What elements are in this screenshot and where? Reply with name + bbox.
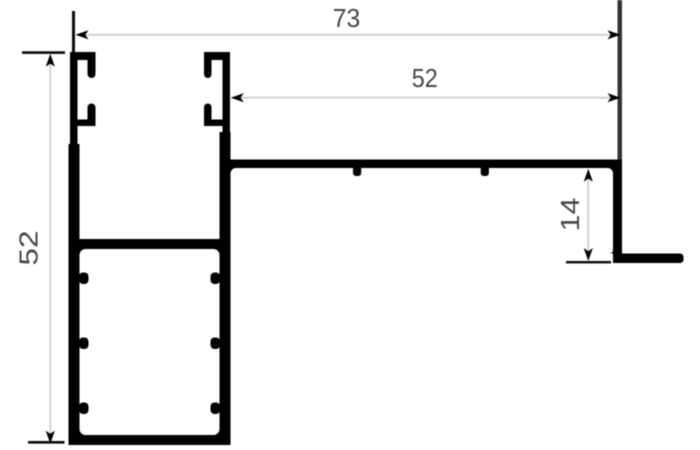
svg-text:52: 52 [412, 63, 438, 93]
svg-text:52: 52 [14, 231, 44, 266]
svg-text:14: 14 [555, 198, 585, 232]
svg-text:73: 73 [333, 3, 361, 33]
